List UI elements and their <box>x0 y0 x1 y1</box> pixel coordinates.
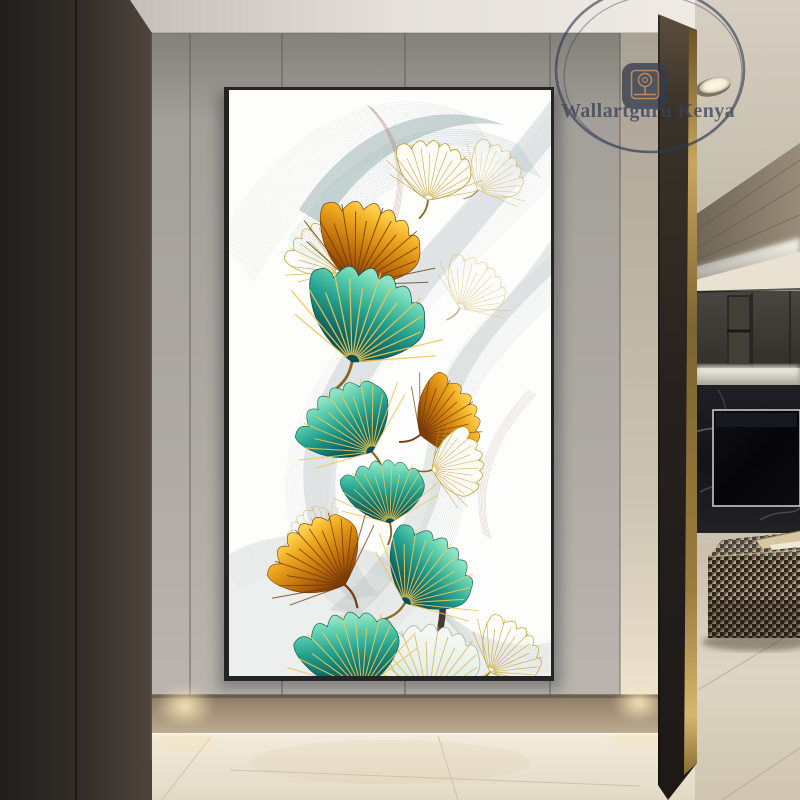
brand-watermark-text: Wallartguru Kenya <box>561 100 735 122</box>
baseboard-band <box>152 695 663 737</box>
wall-art-canvas <box>218 87 592 733</box>
product-photo-wall-art-hallway: Wallartguru Kenya <box>0 0 800 800</box>
hallway-pillar <box>658 14 697 800</box>
floor-warm-reflection <box>250 740 530 784</box>
led-strip-under-cabinets <box>695 366 800 388</box>
television <box>713 410 800 506</box>
houndstooth-ottoman <box>702 531 800 651</box>
right-return-wall <box>620 33 663 695</box>
